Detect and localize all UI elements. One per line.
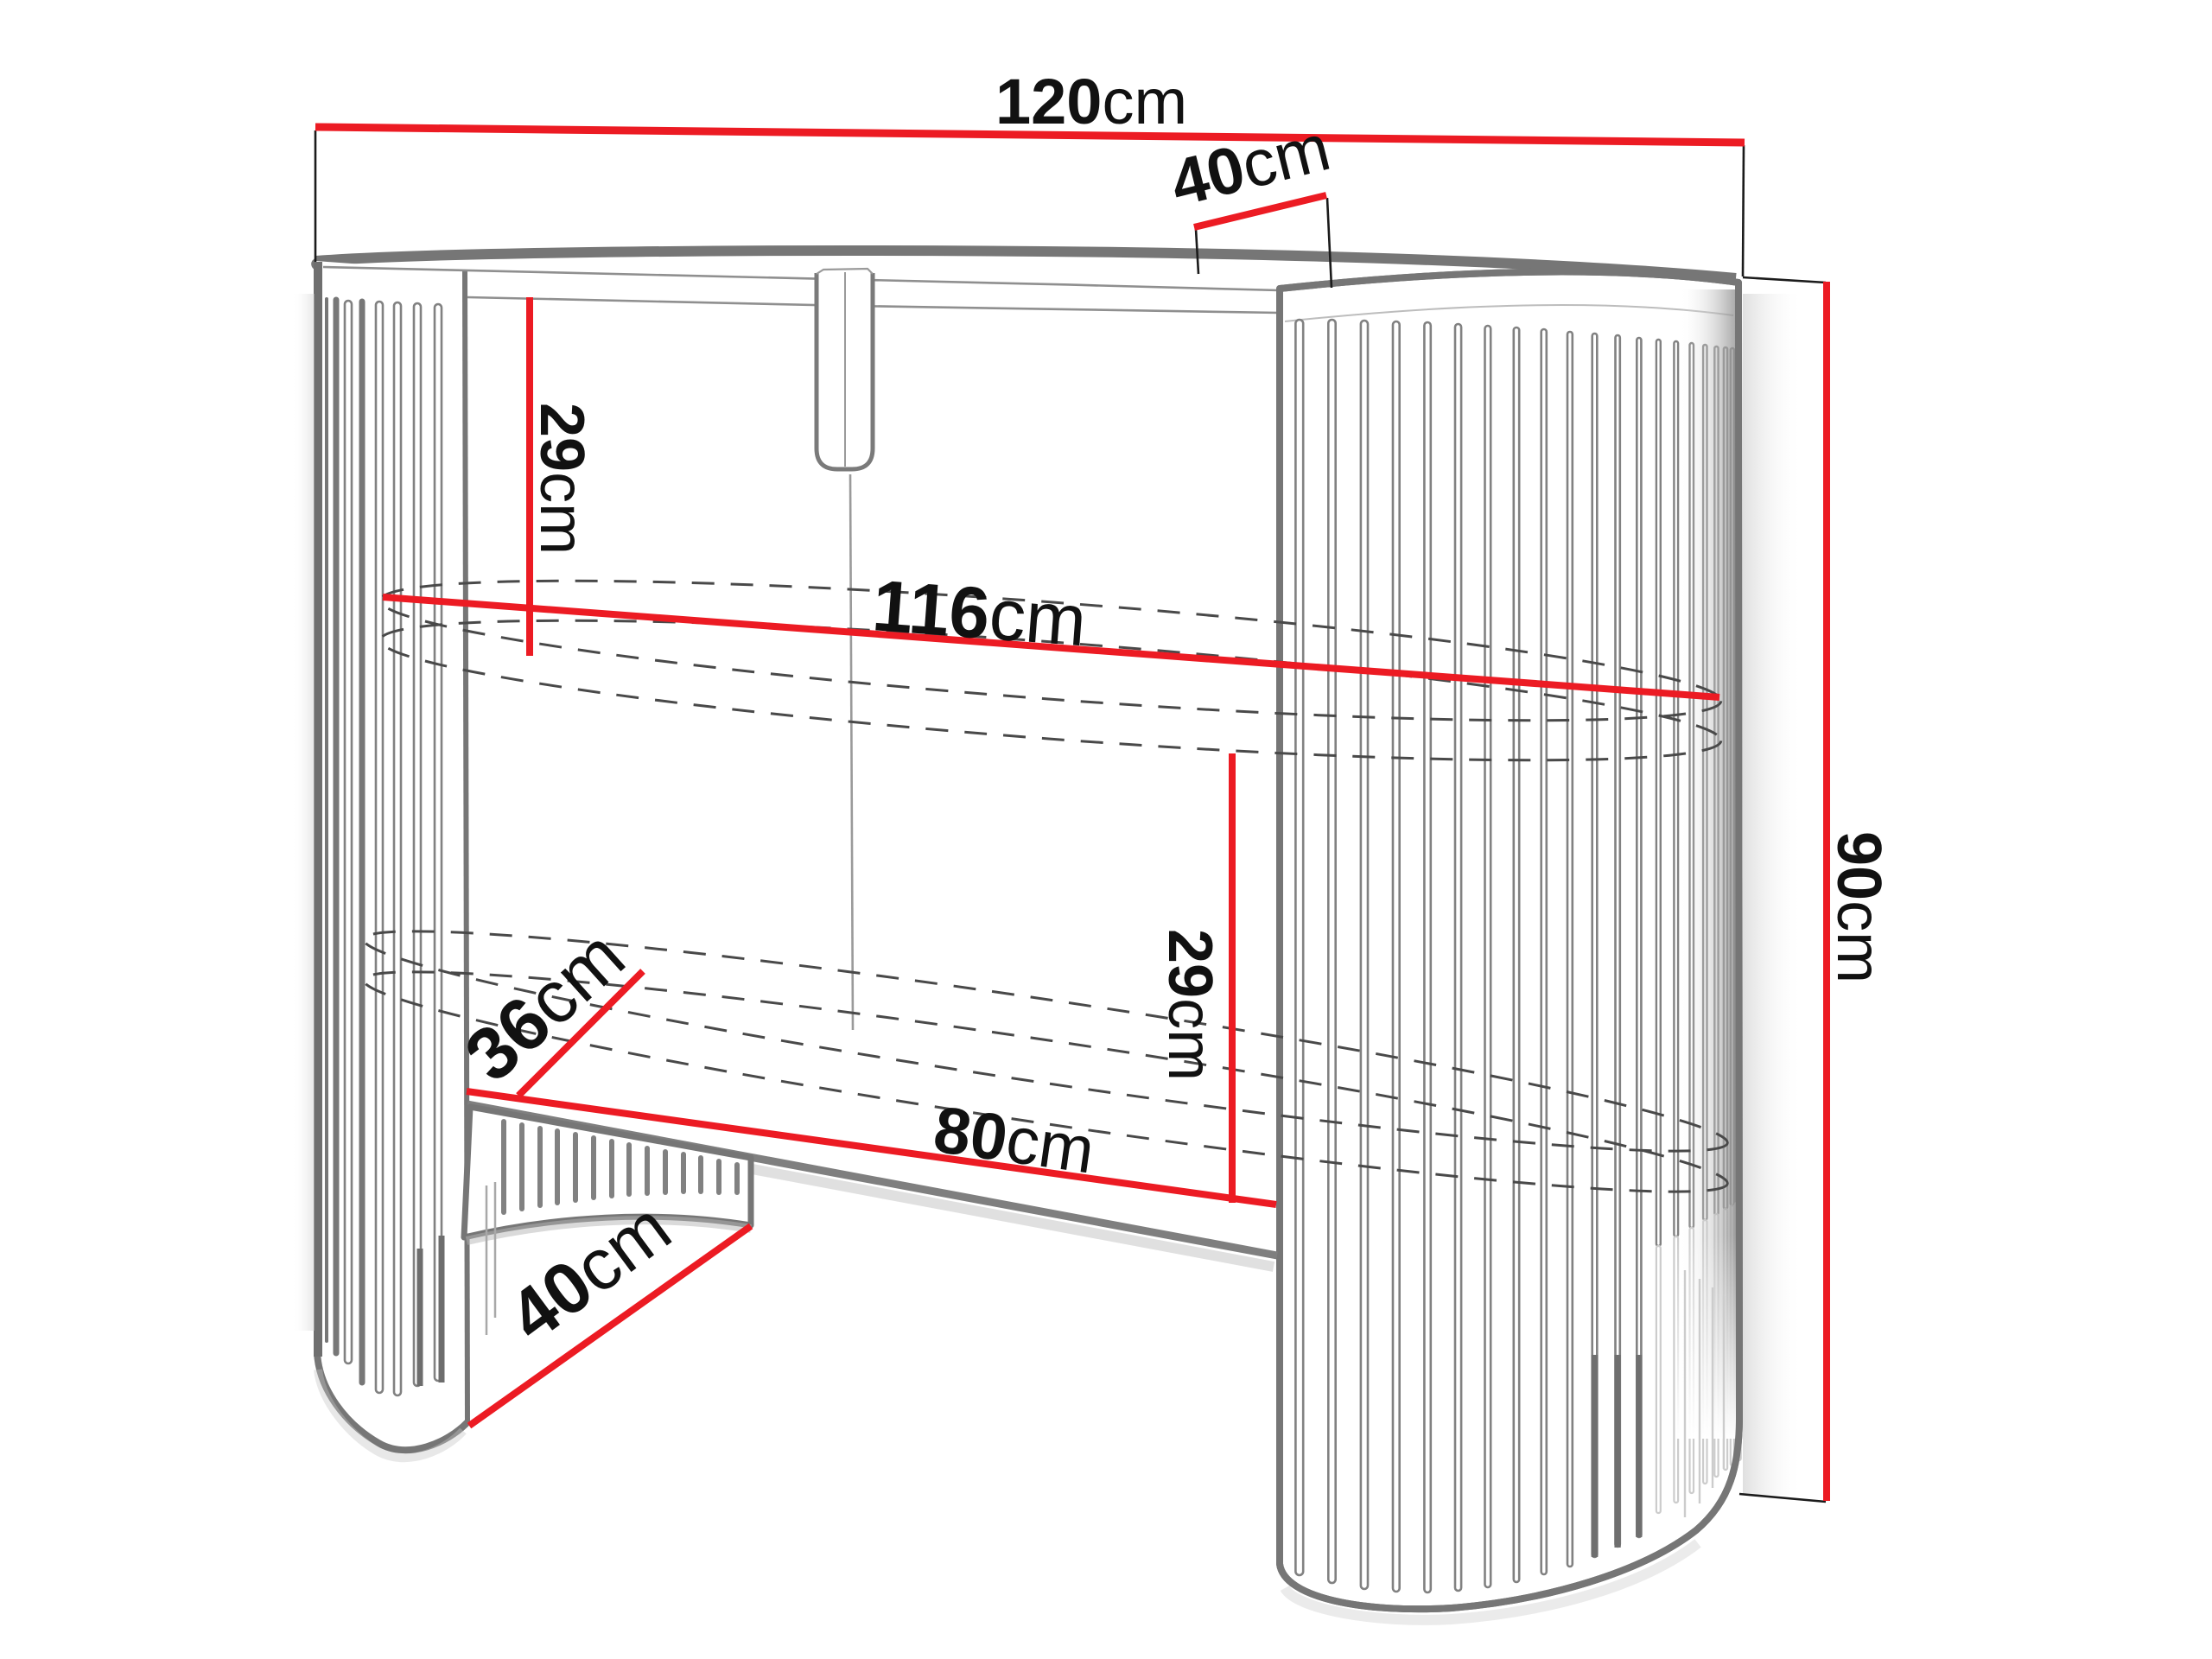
svg-text:116cm: 116cm	[870, 564, 1090, 661]
svg-text:120cm: 120cm	[995, 66, 1187, 137]
svg-text:29cm: 29cm	[1155, 929, 1224, 1081]
svg-text:29cm: 29cm	[527, 403, 596, 555]
svg-text:90cm: 90cm	[1824, 831, 1893, 983]
